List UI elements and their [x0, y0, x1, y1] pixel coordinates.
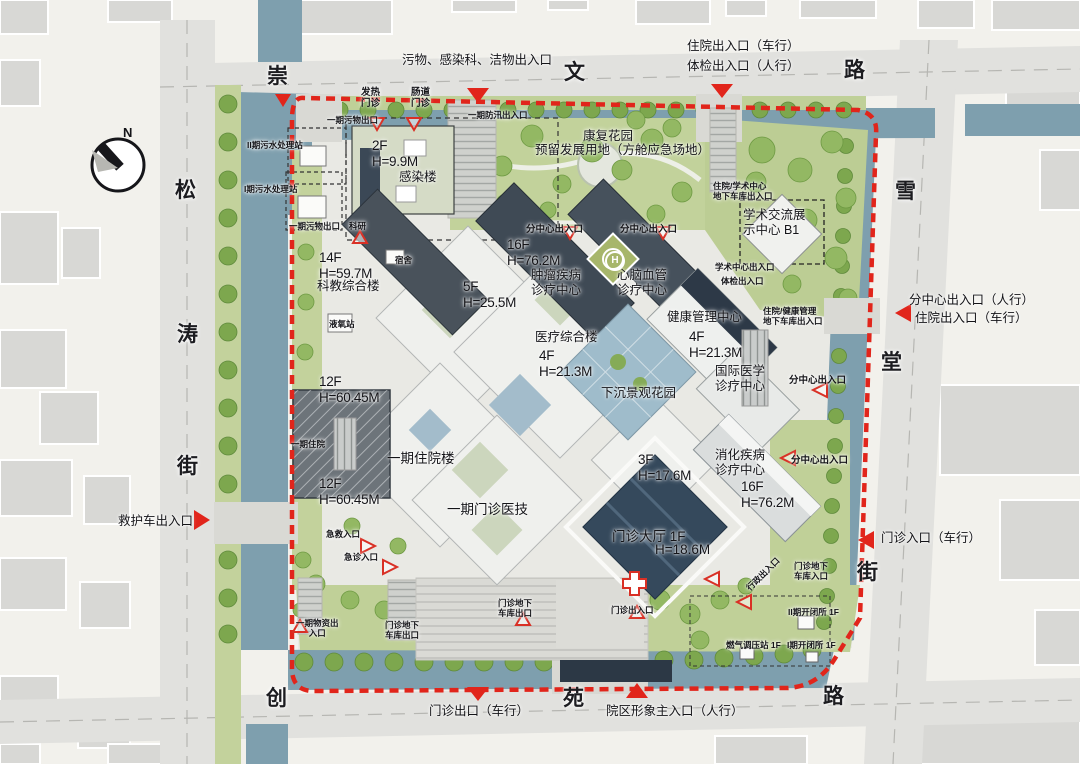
label-digest-floors-height: 16F H=76.2M [741, 479, 794, 511]
street-left-char-1: 松 [175, 178, 196, 203]
label-medical-complex-floors-height: 4F H=21.3M [539, 348, 592, 380]
label-exam-pedestrian-entrance-top: 体检出入口（人行） [687, 59, 800, 74]
label-inpatient-floors-height-a: 12F H=60.45M [319, 374, 379, 406]
street-bottom-char-3: 路 [823, 684, 844, 709]
label-phase1-inpatient-building: 一期住院楼 [387, 451, 455, 467]
label-fever-clinic: 发热 门诊 [361, 87, 380, 110]
label-gas-station: 燃气调压站 1F [726, 640, 781, 650]
label-ambulance-exit: 救护车出入口 [118, 514, 193, 529]
label-inpatient-vehicle-entrance-right: 住院出入口（车行） [915, 311, 1028, 326]
label-research: 科研 [349, 221, 366, 231]
label-rehab-garden: 康复花园 [583, 129, 633, 144]
label-outpatient-garage-out-a: 门诊地下 车库出口 [385, 620, 419, 640]
label-sewage-station-2: II期污水处理站 [247, 140, 303, 150]
site-plan-graphic [0, 0, 1080, 764]
label-outpatient-in-vehicle: 门诊入口（车行） [881, 531, 981, 546]
label-tumor-floors-height: 16F H=76.2M [507, 237, 560, 269]
label-keyan-building: 科教综合楼 [317, 279, 380, 294]
label-sewage-station-1: I期污水处理站 [244, 184, 297, 194]
street-top-char-3: 路 [844, 58, 865, 83]
label-subcenter-entrance-d: 分中心出入口 [791, 455, 848, 466]
label-outpatient-out-vehicle: 门诊出口（车行） [429, 704, 529, 719]
label-hall-podium-floors-height: 3F H=17.6M [638, 452, 691, 484]
label-inpatient-health-garage: 住院/健康管理 地下车库出入口 [763, 306, 823, 326]
label-infection-floors-height: 2F H=9.9M [372, 138, 418, 170]
label-phase1-inpatient-entrance: 一期住院 [291, 439, 325, 449]
label-outpatient-hall-height: H=18.6M [655, 542, 710, 558]
street-top-char-1: 崇 [267, 64, 288, 89]
label-academic-entrance: 学术中心出入口 [715, 262, 775, 272]
label-health-center-floors-height: 4F H=21.3M [689, 329, 742, 361]
compass-north-label: N [123, 125, 132, 141]
label-subcenter-pedestrian-entrance-right: 分中心出入口（人行） [909, 293, 1034, 308]
label-sunken-garden: 下沉景观花园 [601, 386, 676, 401]
label-tumor-center: 肿瘤疾病 诊疗中心 [531, 268, 581, 298]
label-emergency-entrance: 急诊入口 [344, 552, 378, 562]
street-right-char-1: 雪 [895, 179, 916, 204]
label-inpatient-floors-height-b: 12F H=60.45M [319, 476, 379, 508]
helipad-marker: H [605, 251, 625, 271]
label-phase1-outpatient-building: 一期门诊医技 [447, 502, 528, 518]
label-infection-building: 感染楼 [399, 170, 437, 185]
label-subcenter-entrance-a: 分中心出入口 [526, 224, 583, 235]
label-lox-station: 液氧站 [329, 319, 355, 329]
label-phase1-waste-exit-b: 一期污物出口 [289, 221, 340, 231]
label-outpatient-entrance: 门诊出入口 [611, 605, 654, 615]
compass-icon [92, 139, 144, 191]
label-intl-center: 国际医学 诊疗中心 [715, 364, 765, 394]
label-digest-center: 消化疾病 诊疗中心 [715, 448, 765, 478]
street-bottom-char-1: 创 [266, 686, 287, 711]
label-reserved-land: 预留发展用地（方舱应急场地） [535, 143, 710, 158]
label-rescue-entrance: 急救入口 [326, 529, 360, 539]
street-right-char-2: 堂 [881, 350, 902, 375]
label-intestinal-clinic: 肠道 门诊 [411, 87, 430, 110]
label-inpatient-academic-garage: 住院/学术中心 地下车库出入口 [713, 181, 773, 201]
label-academic-center: 学术交流展 示中心 B1 [743, 208, 806, 238]
street-left-char-2: 涛 [177, 322, 198, 347]
street-left-char-3: 街 [177, 454, 198, 479]
street-right-char-3: 街 [857, 560, 878, 585]
label-switch-station-1: I期开闭所 1F [787, 640, 836, 650]
label-subcenter-entrance-c: 分中心出入口 [789, 375, 846, 386]
label-exam-entrance: 体检出入口 [721, 276, 764, 286]
label-keyan-floors-height: 14F H=59.7M [319, 250, 372, 282]
street-bottom-char-2: 苑 [563, 686, 584, 711]
label-phase1-material-entrance: 一期物资出 入口 [296, 618, 339, 638]
label-switch-station-2: II期开闭所 1F [788, 607, 839, 617]
label-phase1-waste-exit-a: 一期污物出口 [327, 115, 378, 125]
label-phase1-flood-access: 一期防汛出入口 [468, 110, 528, 120]
label-waste-infection-clean-entrance: 污物、感染科、洁物出入口 [402, 53, 552, 68]
label-health-center: 健康管理中心 [667, 310, 742, 325]
label-podium-floors-height: 5F H=25.5M [463, 279, 516, 311]
label-inpatient-vehicle-entrance-top: 住院出入口（车行） [687, 39, 800, 54]
label-outpatient-garage-out-b: 门诊地下 车库出口 [498, 598, 532, 618]
label-main-image-entrance: 院区形象主入口（人行） [606, 704, 744, 719]
label-subcenter-entrance-b: 分中心出入口 [620, 224, 677, 235]
label-dormitory: 宿舍 [395, 255, 412, 265]
label-cardio-center: 心脑血管 诊疗中心 [617, 268, 667, 298]
hospital-site-plan: N 崇 文 路 松 涛 街 雪 堂 街 创 苑 路 救护车出入口 污物、感染科、… [0, 0, 1080, 764]
label-medical-complex: 医疗综合楼 [535, 330, 598, 345]
street-top-char-2: 文 [564, 60, 585, 85]
label-outpatient-garage-in: 门诊地下 车库入口 [794, 561, 828, 581]
